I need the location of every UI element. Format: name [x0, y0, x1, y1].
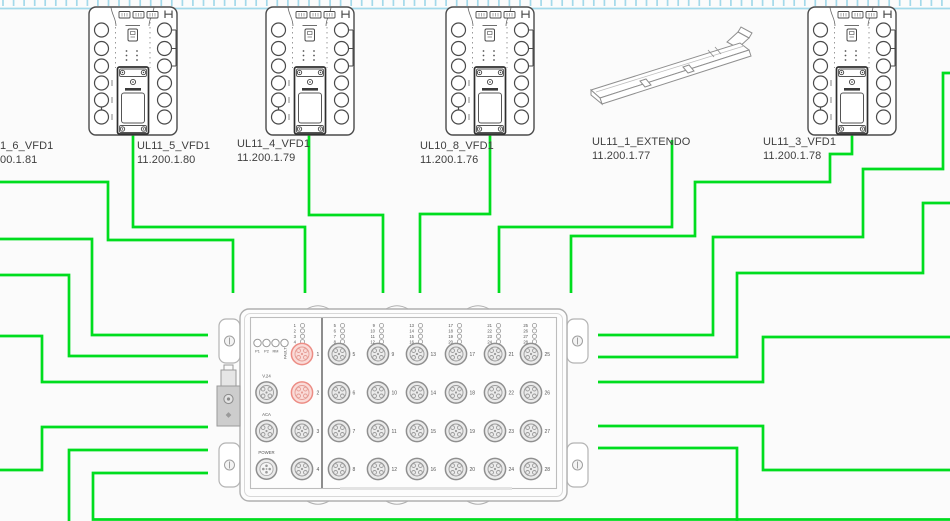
switch-port[interactable] — [484, 343, 505, 364]
cable-right-3[interactable] — [598, 337, 950, 382]
port-number: 27 — [545, 429, 551, 435]
switch-port[interactable] — [520, 343, 541, 364]
device-ip: 11.200.1.79 — [237, 152, 310, 166]
switch-port[interactable] — [445, 420, 466, 441]
svg-text:21: 21 — [487, 323, 492, 328]
port-number: 3 — [317, 429, 320, 435]
switch-port[interactable] — [291, 382, 312, 403]
switch-port[interactable] — [256, 382, 277, 403]
switch-port[interactable] — [291, 420, 312, 441]
port-number: 12 — [392, 467, 398, 473]
vfd-device-ul10-8-vfd1[interactable] — [446, 7, 534, 135]
vfd-device-ul11-5-vfd1[interactable] — [89, 7, 177, 135]
switch-port[interactable] — [520, 382, 541, 403]
port-number: 10 — [392, 391, 398, 397]
switch-port[interactable] — [484, 382, 505, 403]
port-number: 4 — [317, 467, 320, 473]
port-number: 8 — [353, 467, 356, 473]
device-ip: 11.200.1.77 — [592, 150, 690, 164]
svg-text:13: 13 — [409, 323, 414, 328]
svg-text:RM: RM — [273, 350, 279, 354]
port-number: 23 — [509, 429, 515, 435]
svg-text:14: 14 — [409, 329, 414, 334]
port-number: 18 — [470, 391, 476, 397]
cable-ul11-4-vfd1[interactable] — [309, 135, 383, 293]
switch-port[interactable] — [520, 420, 541, 441]
svg-text:19: 19 — [448, 334, 453, 339]
port-number: 22 — [509, 391, 515, 397]
port-number: 2 — [317, 391, 320, 397]
switch-port[interactable] — [328, 382, 349, 403]
svg-text:11: 11 — [371, 334, 376, 339]
switch-port[interactable] — [406, 343, 427, 364]
switch-port[interactable] — [367, 343, 388, 364]
switch-port[interactable] — [406, 382, 427, 403]
device-name: UL11_5_VFD1 — [137, 140, 210, 154]
switch-port[interactable] — [484, 420, 505, 441]
device-label-ul11-5-vfd1: UL11_5_VFD1 11.200.1.80 — [137, 140, 210, 167]
port-number: 5 — [353, 352, 356, 358]
switch-port[interactable] — [328, 458, 349, 479]
svg-text:10: 10 — [370, 329, 375, 334]
svg-text:15: 15 — [409, 334, 414, 339]
device-label-ul11-4-vfd1: UL11_4_VFD1 11.200.1.79 — [237, 138, 310, 165]
port-number: 1 — [317, 352, 320, 358]
switch-port[interactable] — [291, 458, 312, 479]
port-number: 11 — [392, 429, 397, 435]
device-name: UL10_8_VFD1 — [420, 140, 494, 154]
switch-port[interactable] — [445, 382, 466, 403]
din-clamp — [217, 365, 240, 426]
device-name: UL11_3_VFD1 — [763, 136, 836, 150]
device-ip: 00.1.81 — [0, 154, 53, 168]
device-name: UL11_4_VFD1 — [237, 138, 310, 152]
service-port-label: POWER — [258, 450, 274, 455]
device-label-ul11-6-vfd1: 1_6_VFD1 00.1.81 — [0, 140, 53, 167]
port-number: 28 — [545, 467, 551, 473]
switch-port[interactable] — [367, 420, 388, 441]
svg-text:26: 26 — [523, 329, 528, 334]
svg-text:17: 17 — [448, 323, 453, 328]
svg-text:P1: P1 — [255, 350, 260, 354]
switch-port[interactable] — [406, 420, 427, 441]
svg-text:P2: P2 — [264, 350, 269, 354]
panel-bottom-strip — [340, 487, 512, 490]
svg-text:22: 22 — [487, 329, 492, 334]
switch-port[interactable] — [328, 343, 349, 364]
device-label-ul11-1-extendo: UL11_1_EXTENDO 11.200.1.77 — [592, 136, 690, 163]
cable-left-4[interactable] — [0, 427, 208, 470]
port-number: 21 — [509, 352, 515, 358]
cable-left-2[interactable] — [0, 275, 208, 356]
switch-port[interactable] — [445, 458, 466, 479]
diagram-canvas[interactable]: P1P2RMFAULT12341234V.24ACAPOWER567856789… — [0, 0, 950, 521]
vfd-device-ul11-4-vfd1[interactable] — [266, 7, 354, 135]
device-ip: 11.200.1.76 — [420, 154, 494, 168]
svg-text:FAULT: FAULT — [284, 347, 288, 359]
svg-text:27: 27 — [523, 334, 528, 339]
port-number: 26 — [545, 391, 551, 397]
switch-port[interactable] — [520, 458, 541, 479]
device-name: 1_6_VFD1 — [0, 140, 53, 154]
port-number: 20 — [470, 467, 476, 473]
port-number: 9 — [392, 352, 395, 358]
switch-port[interactable] — [256, 420, 277, 441]
switch-port[interactable] — [367, 382, 388, 403]
device-label-ul11-3-vfd1: UL11_3_VFD1 11.200.1.78 — [763, 136, 836, 163]
network-switch[interactable]: P1P2RMFAULT12341234V.24ACAPOWER567856789… — [217, 306, 588, 505]
switch-port[interactable] — [328, 420, 349, 441]
vfd-device-ul11-3-vfd1[interactable] — [808, 7, 896, 135]
port-number: 25 — [545, 352, 551, 358]
port-number: 13 — [431, 352, 437, 358]
svg-text:18: 18 — [448, 329, 453, 334]
port-number: 16 — [431, 467, 437, 473]
port-number: 14 — [431, 391, 437, 397]
port-number: 15 — [431, 429, 437, 435]
switch-port[interactable] — [445, 343, 466, 364]
switch-port[interactable] — [484, 458, 505, 479]
service-port-label: ACA — [262, 412, 271, 417]
cable-left-5[interactable] — [69, 450, 208, 521]
switch-port[interactable] — [406, 458, 427, 479]
svg-text:23: 23 — [487, 334, 492, 339]
port-number: 17 — [470, 352, 476, 358]
port-number: 24 — [509, 467, 515, 473]
device-label-ul10-8-vfd1: UL10_8_VFD1 11.200.1.76 — [420, 140, 494, 167]
cable-right-5[interactable] — [598, 448, 737, 521]
extendo-device-drawing[interactable] — [591, 27, 752, 104]
cable-left-3[interactable] — [0, 336, 208, 382]
cable-right-1[interactable] — [598, 73, 950, 335]
cable-left-1[interactable] — [0, 239, 208, 335]
switch-port[interactable] — [291, 343, 312, 364]
device-ip: 11.200.1.80 — [137, 154, 210, 168]
port-number: 6 — [353, 391, 356, 397]
port-number: 19 — [470, 429, 476, 435]
switch-port[interactable] — [367, 458, 388, 479]
device-name: UL11_1_EXTENDO — [592, 136, 690, 150]
service-port-label: V.24 — [262, 374, 271, 379]
power-port[interactable] — [256, 459, 276, 479]
device-ip: 11.200.1.78 — [763, 150, 836, 164]
port-number: 7 — [353, 429, 356, 435]
svg-text:25: 25 — [523, 323, 528, 328]
